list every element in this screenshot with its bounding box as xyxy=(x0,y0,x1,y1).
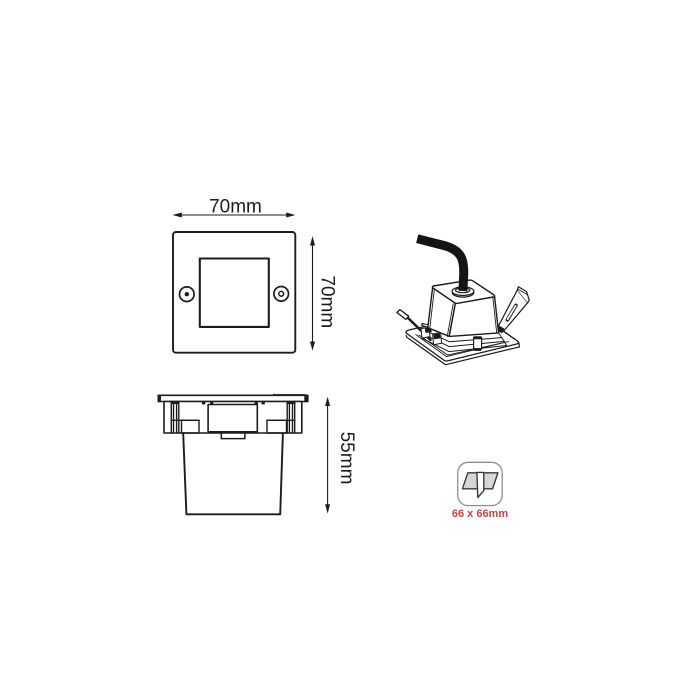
svg-text:66 x 66mm: 66 x 66mm xyxy=(452,508,508,520)
svg-text:70mm: 70mm xyxy=(316,275,337,328)
svg-text:70mm: 70mm xyxy=(209,197,262,218)
svg-text:55mm: 55mm xyxy=(336,432,357,485)
